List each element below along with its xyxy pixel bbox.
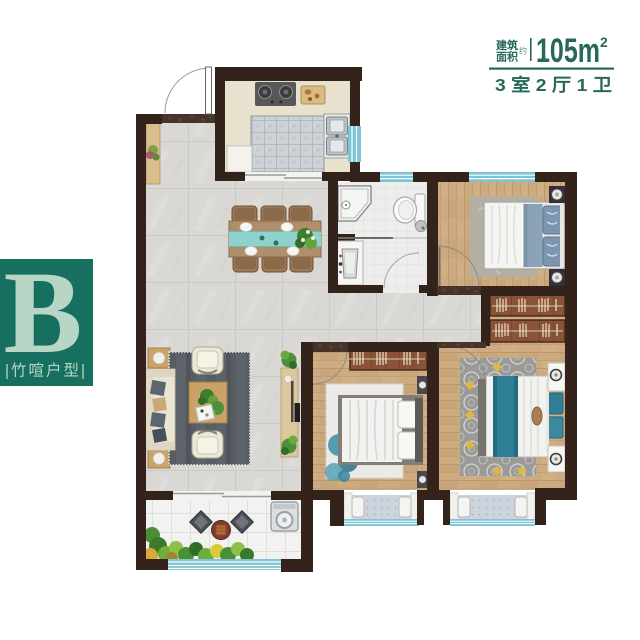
svg-text:建筑: 建筑 xyxy=(496,38,518,52)
svg-text:3 室 2 厅 1 卫: 3 室 2 厅 1 卫 xyxy=(495,75,612,95)
svg-text:|竹喧户型|: |竹喧户型| xyxy=(5,362,87,380)
svg-text:2: 2 xyxy=(600,34,608,50)
svg-text:B: B xyxy=(4,247,83,378)
svg-text:约: 约 xyxy=(519,46,527,56)
svg-text:105m: 105m xyxy=(536,32,600,70)
svg-text:面积: 面积 xyxy=(496,50,518,64)
